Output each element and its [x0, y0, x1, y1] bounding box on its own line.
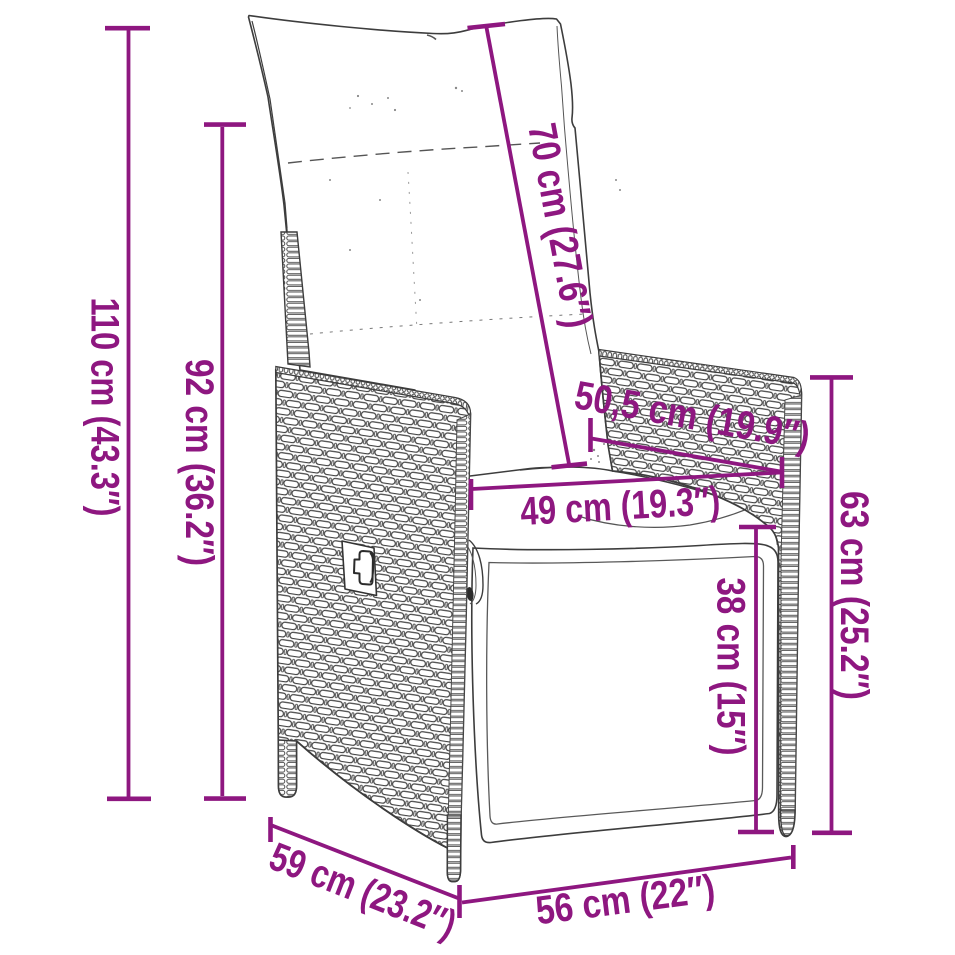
svg-text:92 cm (36.2″): 92 cm (36.2″) — [177, 359, 221, 566]
svg-text:38 cm (15″): 38 cm (15″) — [709, 578, 753, 756]
svg-text:110 cm (43.3″): 110 cm (43.3″) — [83, 298, 127, 517]
svg-text:63 cm (25.2″): 63 cm (25.2″) — [832, 491, 876, 700]
